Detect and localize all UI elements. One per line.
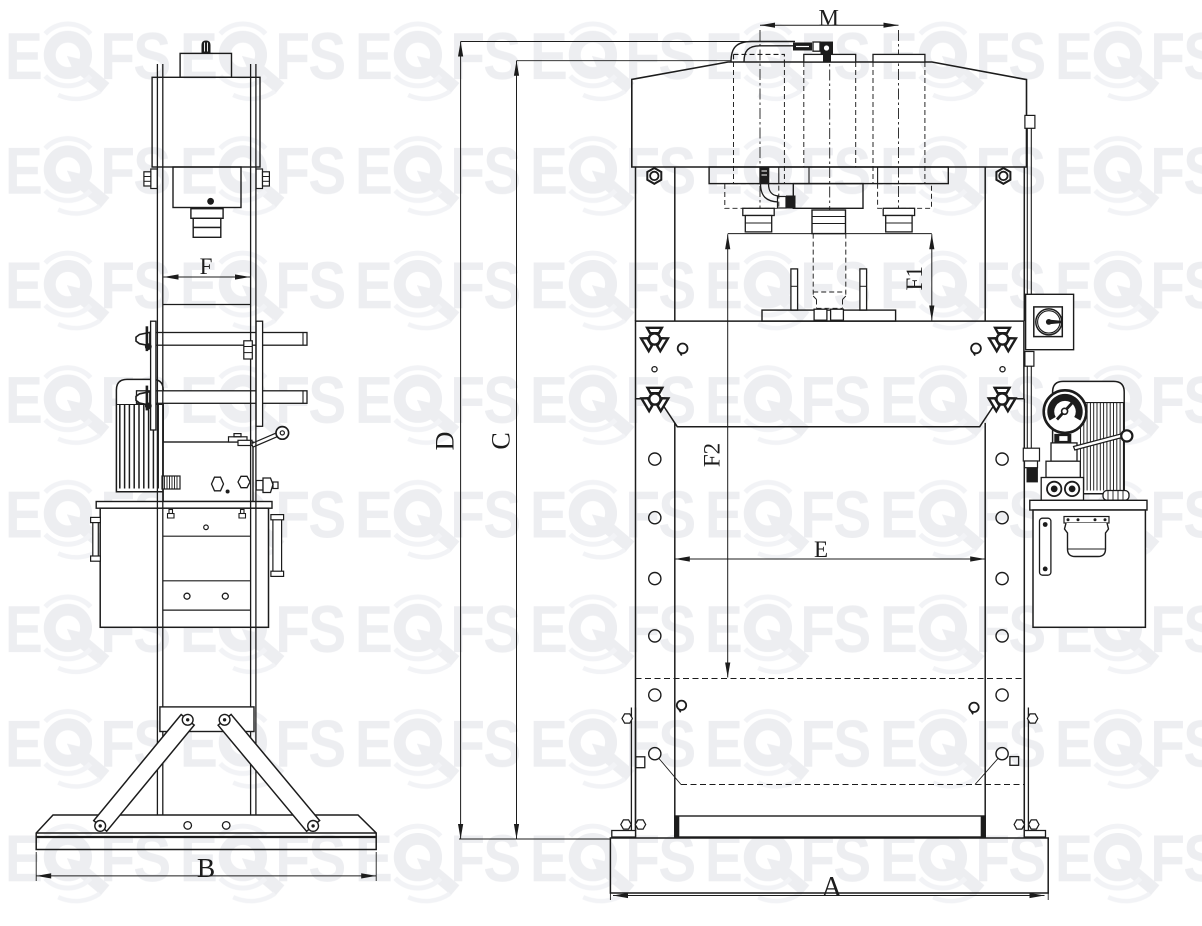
svg-text:C: C [487,432,516,449]
svg-text:M: M [818,6,838,31]
svg-text:F2: F2 [700,443,725,467]
svg-text:F1: F1 [902,266,927,290]
svg-text:F: F [200,254,213,279]
svg-text:B: B [197,852,215,883]
svg-text:D: D [431,432,460,451]
svg-text:E: E [814,537,828,562]
svg-text:A: A [822,872,843,903]
